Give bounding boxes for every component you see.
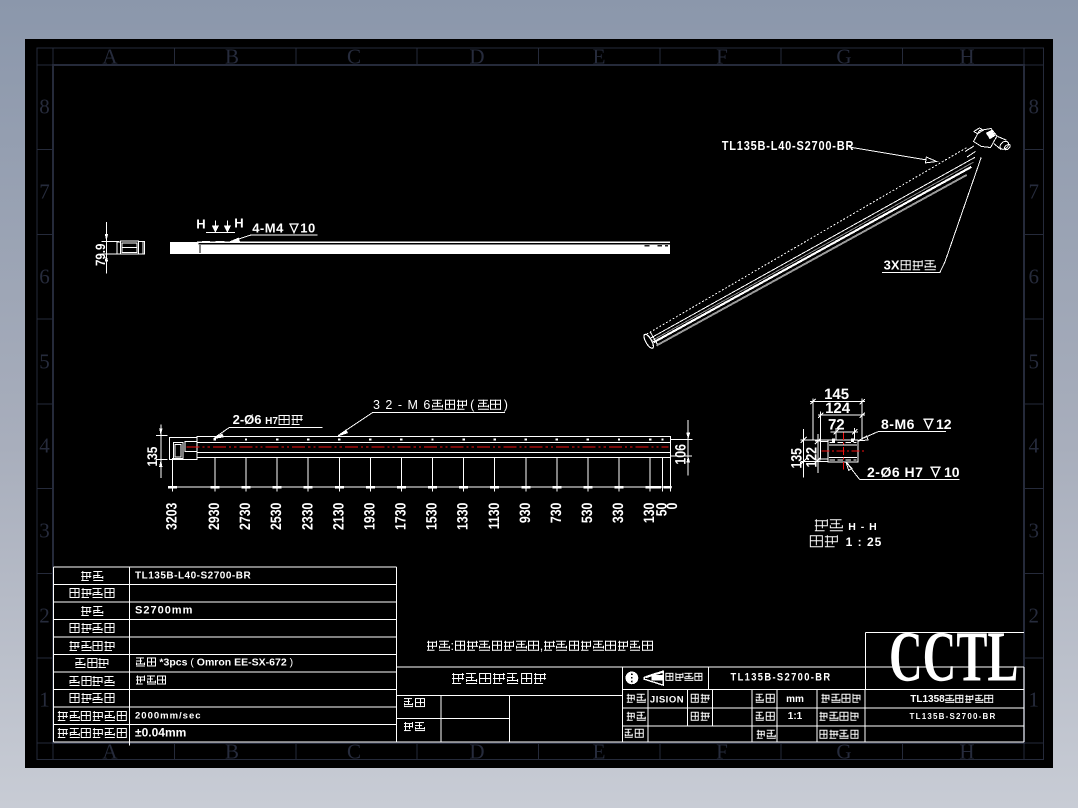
svg-text:2530: 2530 [268, 503, 285, 530]
svg-text:2730: 2730 [237, 503, 254, 530]
svg-text:1930: 1930 [361, 503, 378, 530]
svg-text:1130: 1130 [486, 503, 503, 530]
svg-text:330: 330 [610, 503, 627, 524]
svg-text:530: 530 [579, 503, 596, 524]
svg-text:124: 124 [825, 400, 851, 417]
svg-text:1730: 1730 [393, 503, 410, 530]
svg-text:930: 930 [517, 503, 534, 524]
svg-text:122: 122 [803, 447, 820, 468]
svg-text:2130: 2130 [330, 503, 347, 530]
svg-text:79.9: 79.9 [93, 244, 108, 266]
svg-text:CCTL: CCTL [889, 617, 1019, 697]
svg-text:0: 0 [664, 503, 681, 510]
svg-text:1330: 1330 [455, 503, 472, 530]
svg-text:2330: 2330 [299, 503, 316, 530]
svg-text:730: 730 [548, 503, 565, 524]
svg-text:1530: 1530 [424, 503, 441, 530]
svg-text:106: 106 [672, 444, 689, 465]
svg-text:2930: 2930 [206, 503, 223, 530]
svg-text:3203: 3203 [164, 503, 181, 530]
svg-text:72: 72 [828, 416, 845, 433]
svg-text:135: 135 [144, 446, 160, 466]
